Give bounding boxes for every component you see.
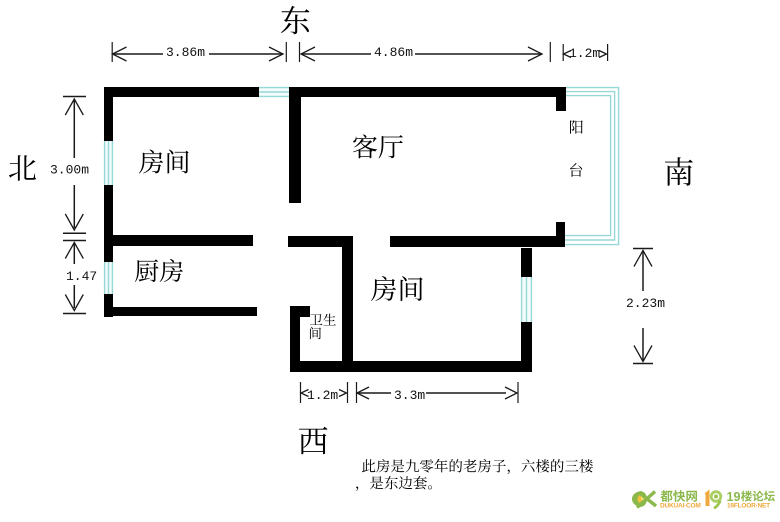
svg-text:3.00m: 3.00m — [50, 163, 89, 178]
svg-text:DUKUAI·COM: DUKUAI·COM — [660, 503, 701, 510]
svg-text:3.86m: 3.86m — [166, 45, 205, 60]
svg-text:4.86m: 4.86m — [374, 45, 413, 60]
svg-text:1.2m: 1.2m — [569, 46, 600, 61]
svg-text:3.3m: 3.3m — [394, 388, 425, 403]
svg-text:1.2m: 1.2m — [307, 388, 338, 403]
svg-text:19FLOOR·NET: 19FLOOR·NET — [727, 503, 770, 510]
svg-text:2.23m: 2.23m — [626, 296, 665, 311]
svg-text:1.47: 1.47 — [66, 269, 97, 284]
